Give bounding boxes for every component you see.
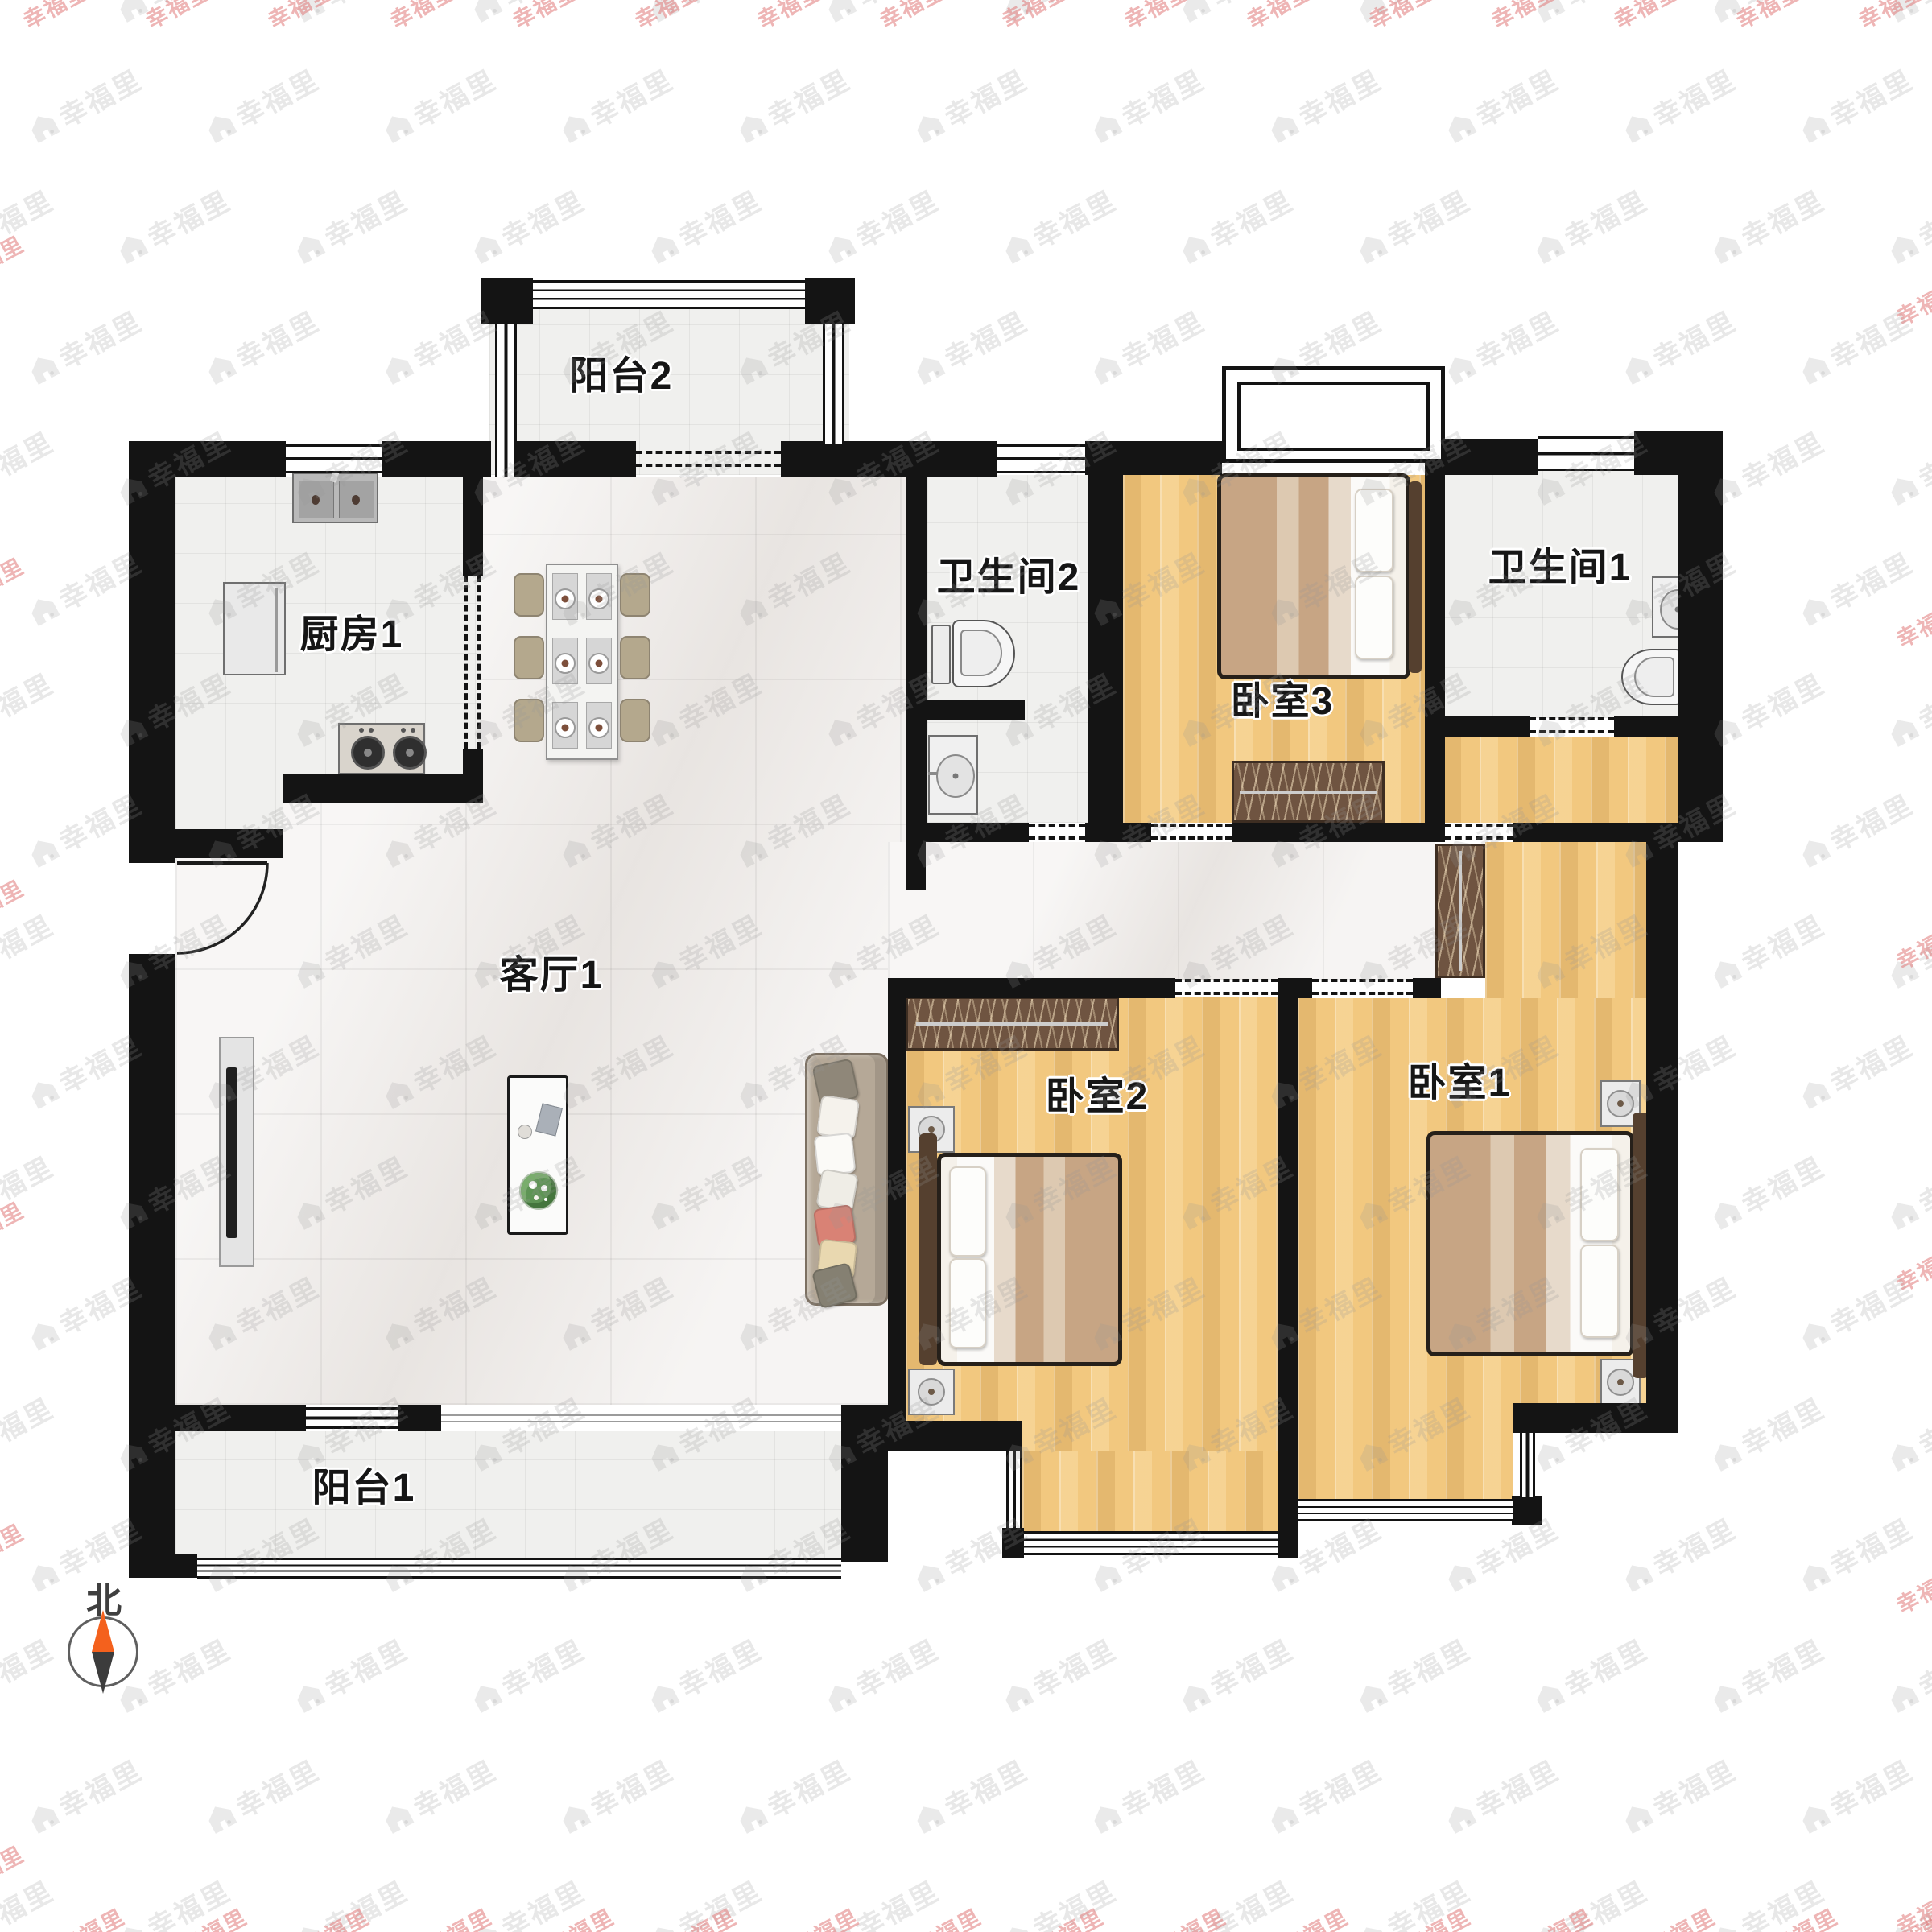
room-label-bedroom1: 卧室1 xyxy=(1408,1051,1512,1107)
room-label-kitchen: 厨房1 xyxy=(300,602,404,658)
room-label-balcony1: 阳台1 xyxy=(312,1455,416,1512)
entry-door xyxy=(0,0,1932,1932)
room-label-bedroom3: 卧室3 xyxy=(1231,669,1335,725)
compass-needle-south xyxy=(92,1652,114,1694)
floor-plan: 阳台2 厨房1 卫生间2 卧室3 卫生间1 客厅1 卧室2 卧室1 阳台1 北 … xyxy=(0,0,1932,1932)
room-label-bedroom2: 卧室2 xyxy=(1046,1064,1150,1121)
compass-needle-north xyxy=(92,1610,114,1652)
room-label-living: 客厅1 xyxy=(500,943,604,999)
room-label-balcony2: 阳台2 xyxy=(570,344,674,400)
room-label-bathroom2: 卫生间2 xyxy=(937,545,1081,601)
room-label-bathroom1: 卫生间1 xyxy=(1488,535,1633,592)
